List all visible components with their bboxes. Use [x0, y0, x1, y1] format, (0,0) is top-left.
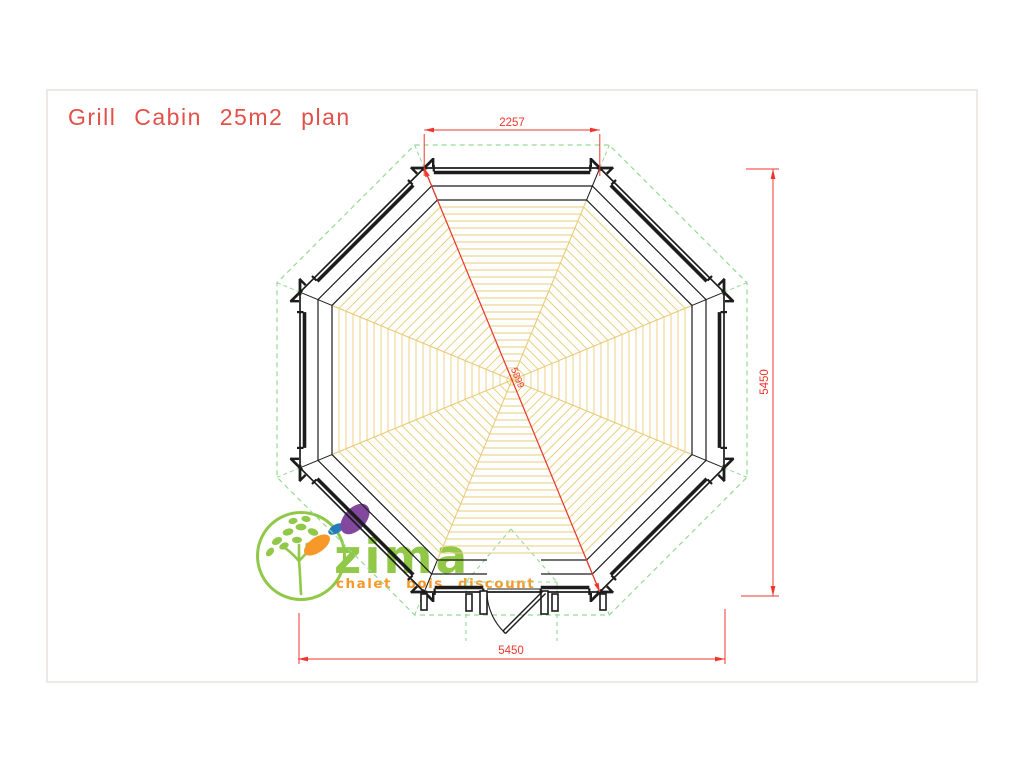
sheet-border [47, 90, 977, 682]
door-jamb-left [480, 591, 487, 614]
floor-plan-drawing: zima chalet bois discount [0, 0, 1024, 768]
door [487, 591, 546, 634]
dim-right-label: 5450 [759, 369, 771, 395]
dim-bottom-label: 5450 [498, 645, 524, 657]
door-swing-arc [487, 594, 504, 632]
logo-tree-icon [258, 513, 345, 600]
page-title: Grill Cabin 25m2 plan [68, 104, 351, 130]
drawing-sheet: zima chalet bois discount [0, 0, 1024, 768]
door-leaf [503, 591, 546, 634]
foundation-posts [421, 591, 606, 614]
dim-top-label: 2257 [499, 117, 525, 129]
